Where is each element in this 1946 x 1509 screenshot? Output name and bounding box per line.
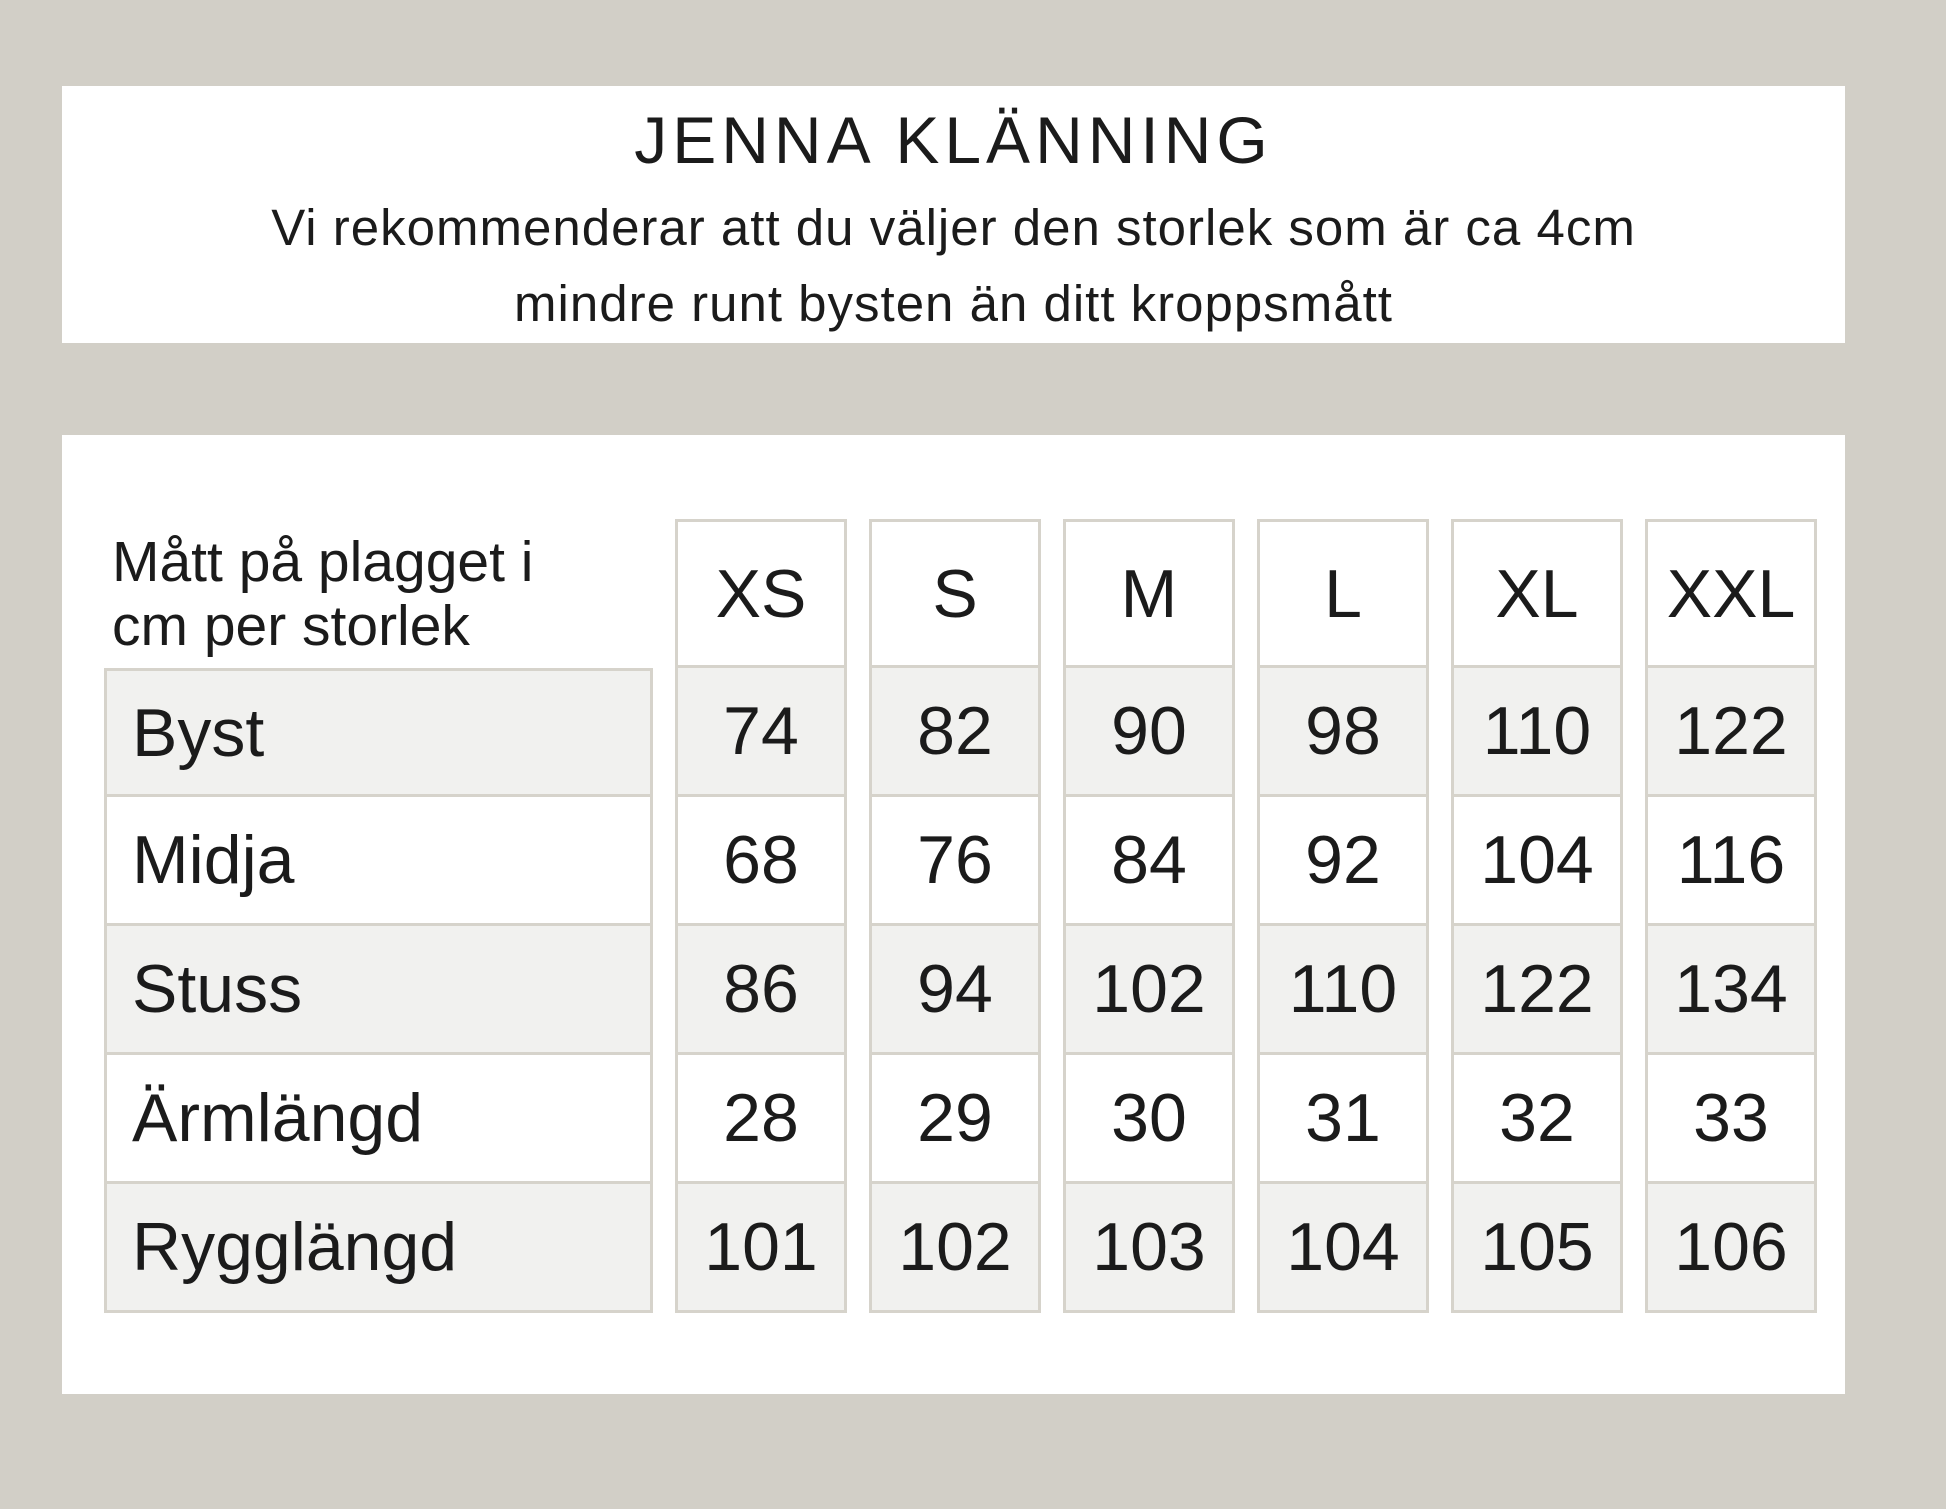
measurements-caption-line-1: Mått på plagget i bbox=[112, 530, 653, 594]
size-recommendation-line-2: mindre runt bysten än ditt kroppsmått bbox=[62, 266, 1845, 342]
value-armlangd-xl: 32 bbox=[1451, 1055, 1623, 1184]
value-midja-xxl: 116 bbox=[1645, 797, 1817, 926]
value-armlangd-xxl: 33 bbox=[1645, 1055, 1817, 1184]
value-rygglangd-s: 102 bbox=[869, 1184, 1041, 1313]
value-rygglangd-xl: 105 bbox=[1451, 1184, 1623, 1313]
header-panel: JENNA KLÄNNING Vi rekommenderar att du v… bbox=[62, 86, 1845, 343]
size-recommendation: Vi rekommenderar att du väljer den storl… bbox=[62, 190, 1845, 342]
value-rygglangd-xs: 101 bbox=[675, 1184, 847, 1313]
value-stuss-xxl: 134 bbox=[1645, 926, 1817, 1055]
size-column-xl: XL 110 104 122 32 105 bbox=[1451, 519, 1623, 1313]
size-header-m: M bbox=[1063, 519, 1235, 668]
row-label-armlangd: Ärmlängd bbox=[104, 1055, 653, 1184]
value-stuss-xl: 122 bbox=[1451, 926, 1623, 1055]
value-stuss-s: 94 bbox=[869, 926, 1041, 1055]
value-midja-l: 92 bbox=[1257, 797, 1429, 926]
row-label-stuss: Stuss bbox=[104, 926, 653, 1055]
value-midja-m: 84 bbox=[1063, 797, 1235, 926]
value-armlangd-l: 31 bbox=[1257, 1055, 1429, 1184]
value-midja-s: 76 bbox=[869, 797, 1041, 926]
size-chart-page: JENNA KLÄNNING Vi rekommenderar att du v… bbox=[0, 0, 1946, 1509]
value-armlangd-xs: 28 bbox=[675, 1055, 847, 1184]
value-rygglangd-xxl: 106 bbox=[1645, 1184, 1817, 1313]
row-label-midja: Midja bbox=[104, 797, 653, 926]
size-header-xxl: XXL bbox=[1645, 519, 1817, 668]
value-byst-m: 90 bbox=[1063, 668, 1235, 797]
table-panel: Mått på plagget i cm per storlek Byst Mi… bbox=[62, 435, 1845, 1394]
measurements-caption: Mått på plagget i cm per storlek bbox=[104, 519, 653, 668]
size-column-xs: XS 74 68 86 28 101 bbox=[675, 519, 847, 1313]
size-header-xs: XS bbox=[675, 519, 847, 668]
product-title: JENNA KLÄNNING bbox=[62, 104, 1845, 178]
measurements-caption-line-2: cm per storlek bbox=[112, 594, 653, 658]
value-armlangd-m: 30 bbox=[1063, 1055, 1235, 1184]
size-header-s: S bbox=[869, 519, 1041, 668]
size-column-m: M 90 84 102 30 103 bbox=[1063, 519, 1235, 1313]
size-header-xl: XL bbox=[1451, 519, 1623, 668]
measurement-label-column: Mått på plagget i cm per storlek Byst Mi… bbox=[104, 519, 653, 1313]
value-midja-xl: 104 bbox=[1451, 797, 1623, 926]
value-stuss-xs: 86 bbox=[675, 926, 847, 1055]
value-midja-xs: 68 bbox=[675, 797, 847, 926]
value-stuss-m: 102 bbox=[1063, 926, 1235, 1055]
value-byst-l: 98 bbox=[1257, 668, 1429, 797]
value-byst-xxl: 122 bbox=[1645, 668, 1817, 797]
size-column-xxl: XXL 122 116 134 33 106 bbox=[1645, 519, 1817, 1313]
value-rygglangd-l: 104 bbox=[1257, 1184, 1429, 1313]
value-byst-s: 82 bbox=[869, 668, 1041, 797]
row-label-byst: Byst bbox=[104, 668, 653, 797]
value-byst-xl: 110 bbox=[1451, 668, 1623, 797]
value-stuss-l: 110 bbox=[1257, 926, 1429, 1055]
row-label-rygglangd: Rygglängd bbox=[104, 1184, 653, 1313]
value-byst-xs: 74 bbox=[675, 668, 847, 797]
size-column-s: S 82 76 94 29 102 bbox=[869, 519, 1041, 1313]
value-armlangd-s: 29 bbox=[869, 1055, 1041, 1184]
size-table: Mått på plagget i cm per storlek Byst Mi… bbox=[104, 519, 1817, 1313]
value-rygglangd-m: 103 bbox=[1063, 1184, 1235, 1313]
size-recommendation-line-1: Vi rekommenderar att du väljer den storl… bbox=[62, 190, 1845, 266]
size-header-l: L bbox=[1257, 519, 1429, 668]
size-column-l: L 98 92 110 31 104 bbox=[1257, 519, 1429, 1313]
